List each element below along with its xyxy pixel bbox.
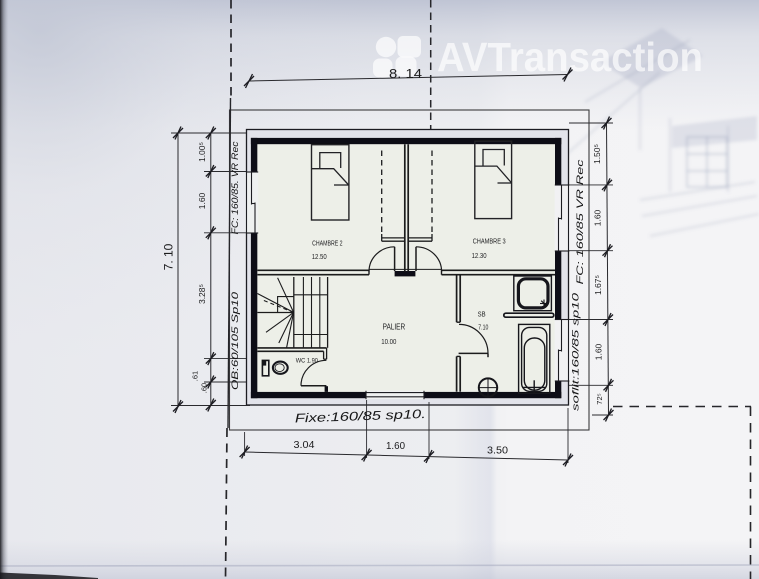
svg-text:7.10: 7.10 [478, 325, 488, 332]
svg-text:72⁵: 72⁵ [595, 393, 604, 404]
svg-text:soflit:160/85 sp10: soflit:160/85 sp10 [571, 293, 581, 411]
svg-text:CHAMBRE 3: CHAMBRE 3 [473, 236, 506, 245]
svg-text:PALIER: PALIER [383, 322, 406, 331]
svg-text:.61: .61 [191, 371, 200, 381]
svg-text:3.28⁵: 3.28⁵ [197, 284, 207, 304]
svg-text:3.04: 3.04 [294, 440, 315, 451]
svg-text:10.00: 10.00 [381, 337, 396, 346]
svg-text:7. 10: 7. 10 [162, 243, 176, 270]
svg-text:SB: SB [478, 311, 486, 318]
svg-text:12.30: 12.30 [472, 251, 487, 260]
svg-text:.60: .60 [200, 383, 209, 393]
svg-text:OB:60/105 Sp10: OB:60/105 Sp10 [230, 291, 241, 390]
svg-text:FC: 160/85. VR Rec: FC: 160/85. VR Rec [230, 141, 241, 234]
svg-text:1.60: 1.60 [594, 343, 604, 360]
svg-text:CHAMBRE 2: CHAMBRE 2 [312, 239, 343, 248]
svg-text:1.00⁵: 1.00⁵ [197, 142, 207, 162]
svg-text:1.60: 1.60 [386, 441, 405, 452]
svg-text:1.60: 1.60 [593, 209, 603, 226]
svg-text:8. 14: 8. 14 [389, 67, 422, 81]
svg-text:1.67⁵: 1.67⁵ [593, 275, 603, 295]
svg-text:AVTransaction: AVTransaction [437, 34, 703, 80]
svg-text:WC 1.90: WC 1.90 [296, 358, 319, 365]
svg-text:1.60: 1.60 [197, 192, 207, 209]
svg-text:FC: 160/85 VR Rec: FC: 160/85 VR Rec [575, 159, 586, 284]
svg-text:1.50⁵: 1.50⁵ [592, 144, 602, 164]
svg-text:12.50: 12.50 [312, 252, 327, 261]
svg-text:3.50: 3.50 [487, 446, 508, 457]
